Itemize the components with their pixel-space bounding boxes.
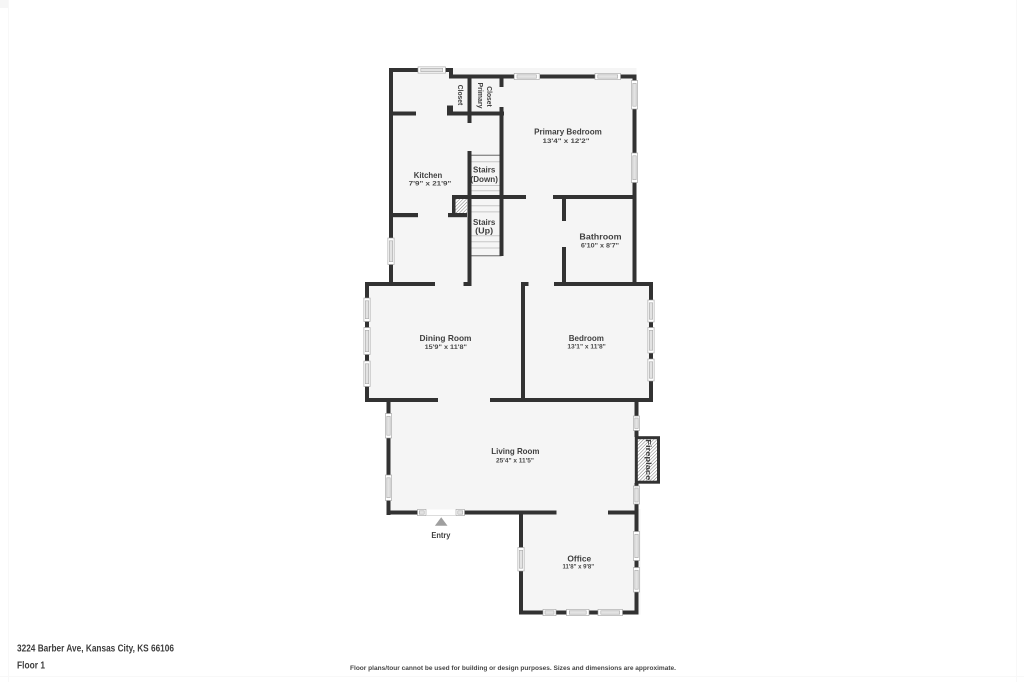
svg-text:Stairs: Stairs xyxy=(473,166,496,175)
svg-text:(Down): (Down) xyxy=(471,175,499,184)
svg-text:Fireplace: Fireplace xyxy=(644,439,651,480)
svg-text:Closet: Closet xyxy=(456,85,465,106)
svg-text:3224 Barber Ave, Kansas City,: 3224 Barber Ave, Kansas City, KS 66106 xyxy=(17,644,174,655)
svg-text:Office: Office xyxy=(567,554,591,564)
svg-text:15'9" x 11'8": 15'9" x 11'8" xyxy=(425,344,467,351)
svg-text:Primary: Primary xyxy=(476,83,485,110)
svg-text:Stairs: Stairs xyxy=(473,218,496,227)
svg-text:Closet: Closet xyxy=(485,86,494,107)
svg-text:(Up): (Up) xyxy=(475,227,493,236)
svg-text:13'4" x 12'2": 13'4" x 12'2" xyxy=(543,138,590,145)
svg-text:Primary Bedroom: Primary Bedroom xyxy=(534,126,602,136)
svg-text:Floor plans/tour cannot be use: Floor plans/tour cannot be used for buil… xyxy=(350,665,676,672)
svg-text:Bedroom: Bedroom xyxy=(569,333,605,343)
svg-text:11'8" x 9'8": 11'8" x 9'8" xyxy=(562,564,594,571)
svg-text:Dining Room: Dining Room xyxy=(420,333,472,343)
svg-text:Bathroom: Bathroom xyxy=(579,231,622,241)
svg-text:Entry: Entry xyxy=(431,530,450,540)
svg-text:Living Room: Living Room xyxy=(491,446,540,456)
svg-text:25'4" x 11'5": 25'4" x 11'5" xyxy=(496,457,534,464)
svg-text:Kitchen: Kitchen xyxy=(414,170,443,180)
svg-text:7'9" x 21'9": 7'9" x 21'9" xyxy=(409,181,452,188)
svg-text:Floor 1: Floor 1 xyxy=(17,660,45,671)
svg-text:6'10" x 8'7": 6'10" x 8'7" xyxy=(581,242,619,249)
svg-text:13'1" x 11'8": 13'1" x 11'8" xyxy=(567,344,605,351)
